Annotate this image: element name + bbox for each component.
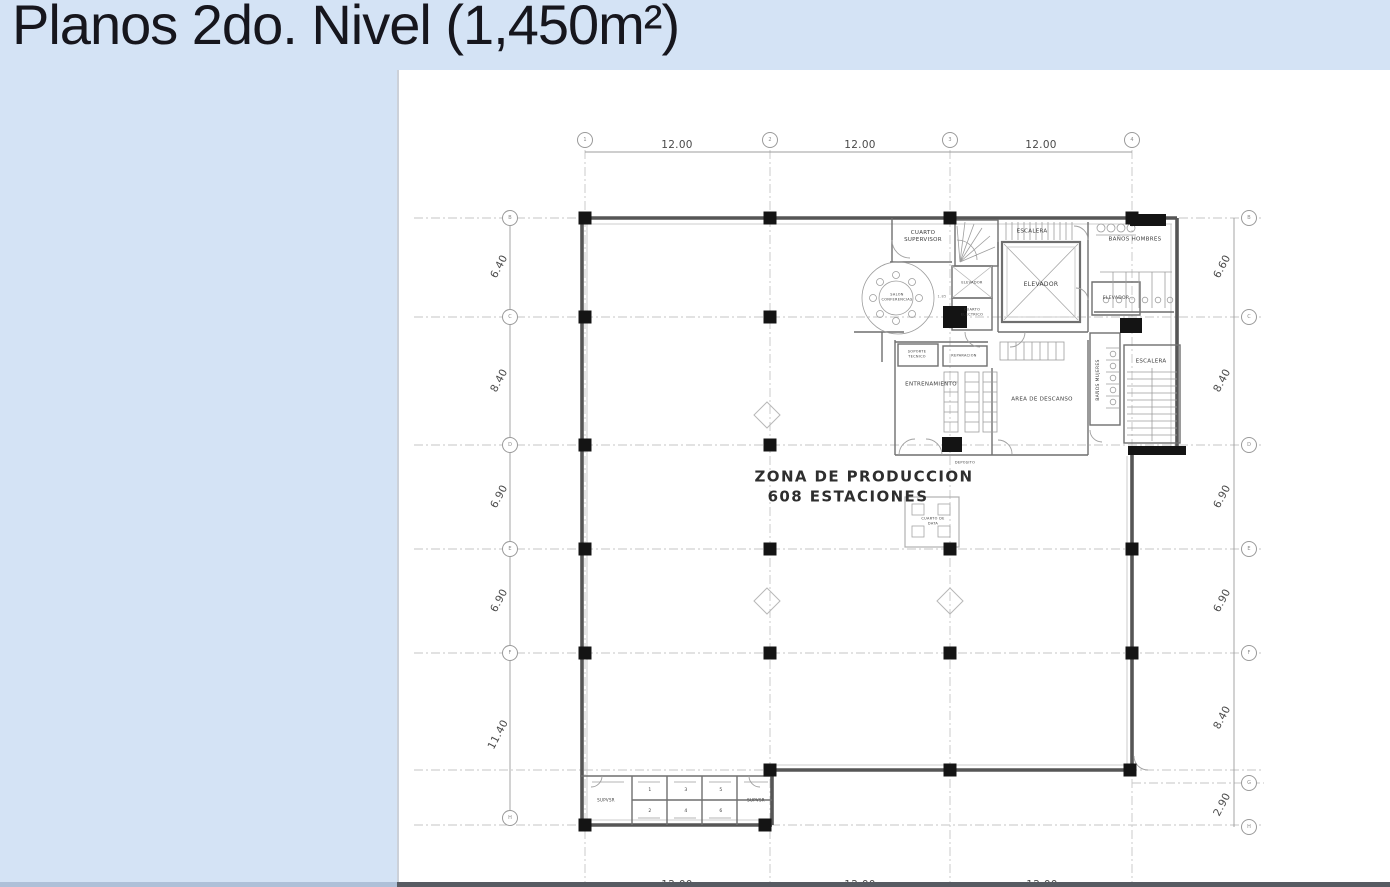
grid-bubble-right-g: G	[1247, 780, 1251, 787]
dim-conference-annotation: 1.85	[938, 295, 947, 300]
room-label-area-descanso: AREA DE DESCANSO	[1011, 396, 1073, 403]
room-label-cuarto-supervisor: CUARTO SUPERVISOR	[904, 230, 942, 244]
grid-bubble-4: 4	[1130, 137, 1133, 144]
slide: { "title": "Planos 2do. Nivel (1,450m²)"…	[0, 0, 1390, 887]
bottom-edge-bar	[397, 882, 1390, 887]
grid-bubble-right-h: H	[1247, 824, 1251, 831]
room-label-banos-hombres: BAÑOS HOMBRES	[1109, 236, 1162, 243]
grid-bubble-right-c: C	[1247, 314, 1251, 321]
grid-bubble-left-c: C	[508, 314, 512, 321]
room-label-elevador-small: ELEVADOR	[961, 281, 982, 286]
interior-walls	[580, 218, 1180, 825]
room-label-cuarto-electrico: CUARTO ELECTRICO	[961, 307, 983, 316]
room-label-supvsr-right: SUPVSR	[747, 797, 765, 802]
diamond-markers	[754, 402, 963, 614]
room-label-escalera-top: ESCALERA	[1017, 228, 1048, 235]
fixtures	[592, 222, 1177, 818]
floorplan-sheet: 12.00 12.00 12.00 12.00 12.00 12.00 6.40…	[397, 70, 1390, 885]
grid-bubble-right-b: B	[1247, 215, 1250, 222]
grid-bubble-3: 3	[948, 137, 951, 144]
room-label-supvsr-left: SUPVSR	[597, 797, 615, 802]
grid-bubble-right-e: E	[1247, 546, 1250, 553]
cubicle-number-5: 5	[719, 788, 722, 794]
grid-bubble-left-b: B	[508, 215, 511, 222]
cubicle-number-4: 4	[684, 809, 687, 815]
cubicle-number-1: 1	[648, 788, 651, 794]
zone-label-line1: ZONA DE PRODUCCION	[755, 467, 974, 487]
grid-bubble-right-d: D	[1247, 442, 1251, 449]
room-label-elevador-right: ELEVADOR	[1103, 296, 1130, 302]
columns	[579, 212, 1187, 832]
grid-bubble-left-h: H	[508, 815, 512, 822]
cubicle-number-2: 2	[648, 809, 651, 815]
dim-top-2: 12.00	[844, 139, 876, 153]
room-label-elevador-main: ELEVADOR	[1024, 281, 1059, 289]
grid-bubble-left-d: D	[508, 442, 512, 449]
dim-top-1: 12.00	[661, 139, 693, 153]
room-label-salon-conferencias: SALON CONFERENCIAS	[882, 292, 913, 301]
room-label-deposito: DEPOSITO	[955, 461, 975, 466]
room-label-escalera-right: ESCALERA	[1136, 358, 1167, 365]
room-label-reparacion: REPARACION	[951, 354, 976, 359]
room-label-entrenamiento: ENTRENAMIENTO	[905, 381, 957, 388]
floorplan-canvas: 12.00 12.00 12.00 12.00 12.00 12.00 6.40…	[397, 70, 1390, 885]
page-title: Planos 2do. Nivel (1,450m²)	[12, 0, 679, 57]
room-label-cuarto-data: CUARTO DE DATA	[921, 516, 944, 525]
cubicle-number-3: 3	[684, 788, 687, 794]
room-label-soporte-tecnico: SOPORTE TECNICO	[908, 349, 926, 358]
bottom-edge-left	[0, 882, 397, 887]
dim-top-3: 12.00	[1025, 139, 1057, 153]
wall-inner-lines	[586, 222, 1172, 820]
zone-label-line2: 608 ESTACIONES	[768, 487, 929, 507]
grid-bubble-right-f: F	[1248, 650, 1251, 657]
grid-bubble-left-e: E	[508, 546, 511, 553]
grid-bubble-1: 1	[583, 137, 586, 144]
grid-bubble-left-f: F	[509, 650, 512, 657]
room-label-banos-mujeres: BAÑOS MUJERES	[1096, 359, 1102, 400]
grid-bubble-2: 2	[768, 137, 771, 144]
cubicle-number-6: 6	[719, 809, 722, 815]
